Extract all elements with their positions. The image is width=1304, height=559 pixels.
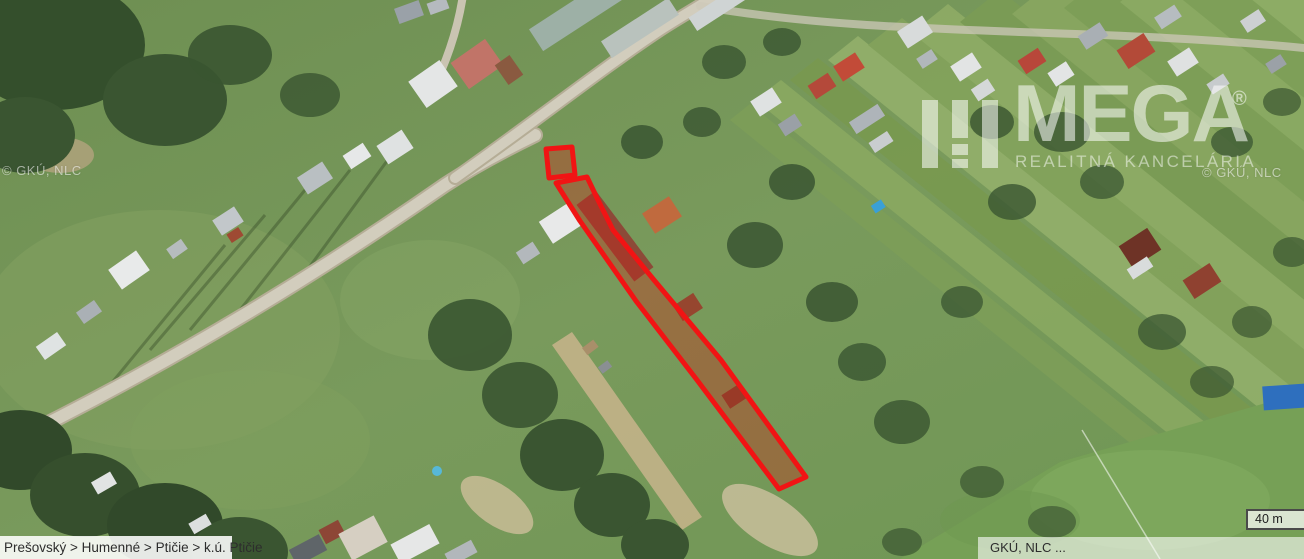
round-pool xyxy=(432,466,442,476)
mega-logo-icon xyxy=(922,100,1000,168)
breadcrumb: Prešovský > Humenné > Ptičie > k.ú. Ptič… xyxy=(0,536,232,559)
map-view: MEGA ® REALITNÁ KANCELÁRIA © GKÚ, NLC © … xyxy=(0,0,1304,559)
scale-indicator: 40 m xyxy=(1246,509,1304,530)
brand-name: MEGA xyxy=(1013,74,1248,155)
registered-mark: ® xyxy=(1232,88,1247,111)
attribution-bar: GKÚ, NLC ... xyxy=(978,537,1304,559)
copyright-watermark-right: © GKÚ, NLC xyxy=(1202,165,1282,180)
blue-roof-building xyxy=(1262,384,1304,411)
copyright-watermark-left: © GKÚ, NLC xyxy=(2,163,82,178)
